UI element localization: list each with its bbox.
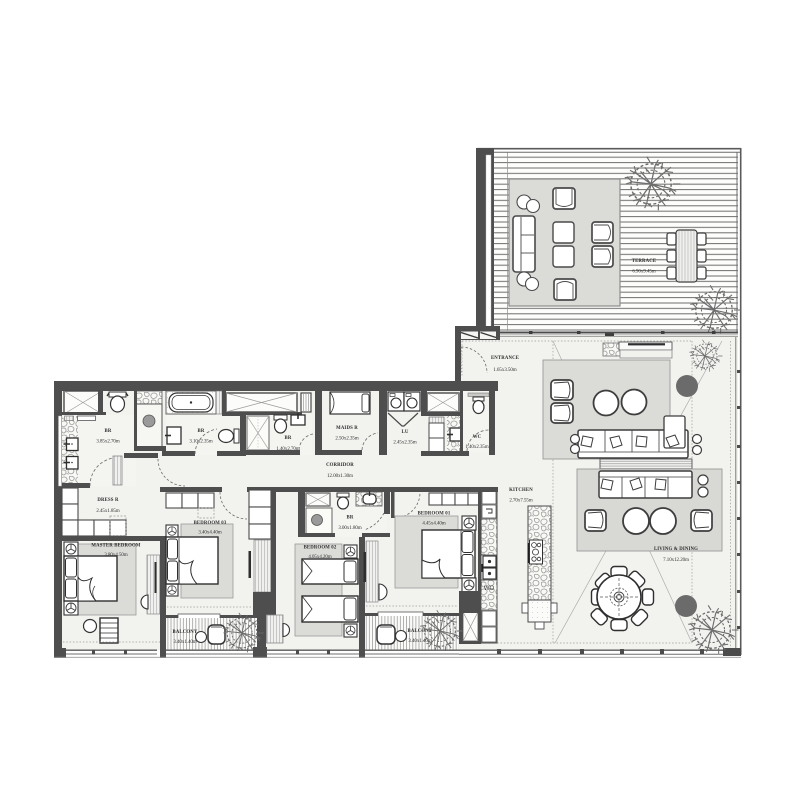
- svg-text:MAIDS R: MAIDS R: [336, 426, 358, 431]
- svg-text:6.90x9.45m: 6.90x9.45m: [632, 270, 656, 275]
- svg-text:2.45x1.85m: 2.45x1.85m: [96, 509, 120, 514]
- svg-text:3.00x1.80m: 3.00x1.80m: [338, 526, 362, 531]
- svg-text:LU: LU: [402, 430, 409, 435]
- svg-text:2.45x2.35m: 2.45x2.35m: [393, 441, 417, 446]
- svg-text:3.85x2.70m: 3.85x2.70m: [96, 440, 120, 445]
- svg-text:12.00x1.30m: 12.00x1.30m: [327, 474, 353, 479]
- svg-text:1.65x3.50m: 1.65x3.50m: [493, 368, 517, 373]
- svg-text:BR: BR: [198, 429, 205, 434]
- svg-text:BR: BR: [105, 429, 112, 434]
- svg-text:4.45x4.40m: 4.45x4.40m: [422, 522, 446, 527]
- svg-text:CORRIDOR: CORRIDOR: [326, 463, 354, 468]
- svg-text:BEDROOM 01: BEDROOM 01: [418, 512, 451, 517]
- svg-text:BR: BR: [347, 516, 354, 521]
- svg-text:BEDROOM 03: BEDROOM 03: [194, 521, 227, 526]
- svg-text:BR: BR: [285, 436, 292, 441]
- svg-text:ENTRANCE: ENTRANCE: [491, 356, 519, 361]
- svg-text:3.40x4.40m: 3.40x4.40m: [198, 531, 222, 536]
- svg-text:2.50x2.35m: 2.50x2.35m: [335, 437, 359, 442]
- svg-text:3.80x4.50m: 3.80x4.50m: [104, 553, 128, 558]
- svg-text:WO: WO: [484, 586, 495, 592]
- svg-text:3.10x2.35m: 3.10x2.35m: [189, 440, 213, 445]
- svg-text:7.10x12.20m: 7.10x12.20m: [663, 558, 689, 563]
- svg-text:4.05x4.20m: 4.05x4.20m: [308, 555, 332, 560]
- svg-text:BEDROOM 02: BEDROOM 02: [304, 546, 337, 551]
- svg-text:MASTER BEDROOM: MASTER BEDROOM: [91, 544, 140, 549]
- svg-text:TERRACE: TERRACE: [632, 259, 657, 264]
- svg-text:KITCHEN: KITCHEN: [509, 488, 533, 493]
- svg-text:1.40x2.35m: 1.40x2.35m: [465, 445, 489, 450]
- svg-text:2.70x7.55m: 2.70x7.55m: [509, 499, 533, 504]
- svg-text:LIVING & DINING: LIVING & DINING: [654, 547, 698, 552]
- svg-text:DRESS R: DRESS R: [97, 498, 119, 503]
- svg-text:BALCONY: BALCONY: [172, 630, 197, 635]
- svg-text:3.40x1.40m: 3.40x1.40m: [173, 640, 197, 645]
